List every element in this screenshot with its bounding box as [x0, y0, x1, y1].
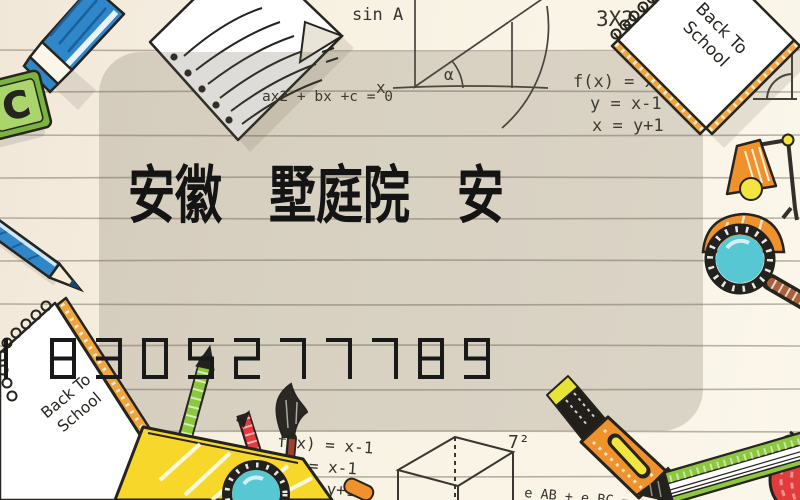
notebook-tr-line1: Back To: [691, 0, 751, 59]
phone-digit: [282, 340, 304, 377]
notebook-bl-line2: School: [54, 389, 105, 436]
phone-digit: [190, 340, 212, 377]
seven-squared-label: 7²: [508, 432, 530, 453]
edge-formula-label: e AB + e BC = e AB: [524, 485, 671, 500]
right-angle-doodle: [753, 48, 797, 99]
3x2-label: 3X2: [596, 7, 634, 31]
cube-doodle: [398, 437, 513, 500]
desk-lamp-doodle: [703, 135, 797, 253]
formula-x-bottom: x = y+1: [287, 477, 356, 500]
phone-digit: [98, 340, 120, 377]
phone-digit: [374, 340, 396, 377]
main-title: 安徽 墅庭院 安: [128, 165, 504, 228]
formula-y-bottom: y = x-1: [289, 455, 358, 479]
tile-letter: C: [0, 83, 34, 129]
phone-digit: [144, 340, 166, 377]
blue-pencil-doodle: [0, 193, 85, 296]
phone-digit: [52, 340, 74, 377]
magnifier-right-doodle: [710, 229, 800, 304]
letter-tile-doodle: C: [0, 70, 52, 151]
phone-number-digits: [4, 336, 516, 382]
sin-a-label: sin A: [352, 5, 403, 25]
formula-fx-bottom: f(x) = x-1: [277, 432, 374, 458]
formula-block-bottom: f(x) = x-1 y = x-1 x = y+1: [274, 432, 374, 500]
phone-digit: [466, 340, 488, 377]
phone-digit: [328, 340, 350, 377]
phone-number: [4, 336, 516, 382]
back-to-school-poster: C sin A 3X2 x α ax2 + bx +c = 0 f(x) = x…: [0, 0, 800, 500]
apple-doodle: [770, 432, 800, 500]
phone-digit: [420, 340, 442, 377]
green-pencil-doodle: [638, 431, 800, 500]
phone-digit: [236, 340, 258, 377]
